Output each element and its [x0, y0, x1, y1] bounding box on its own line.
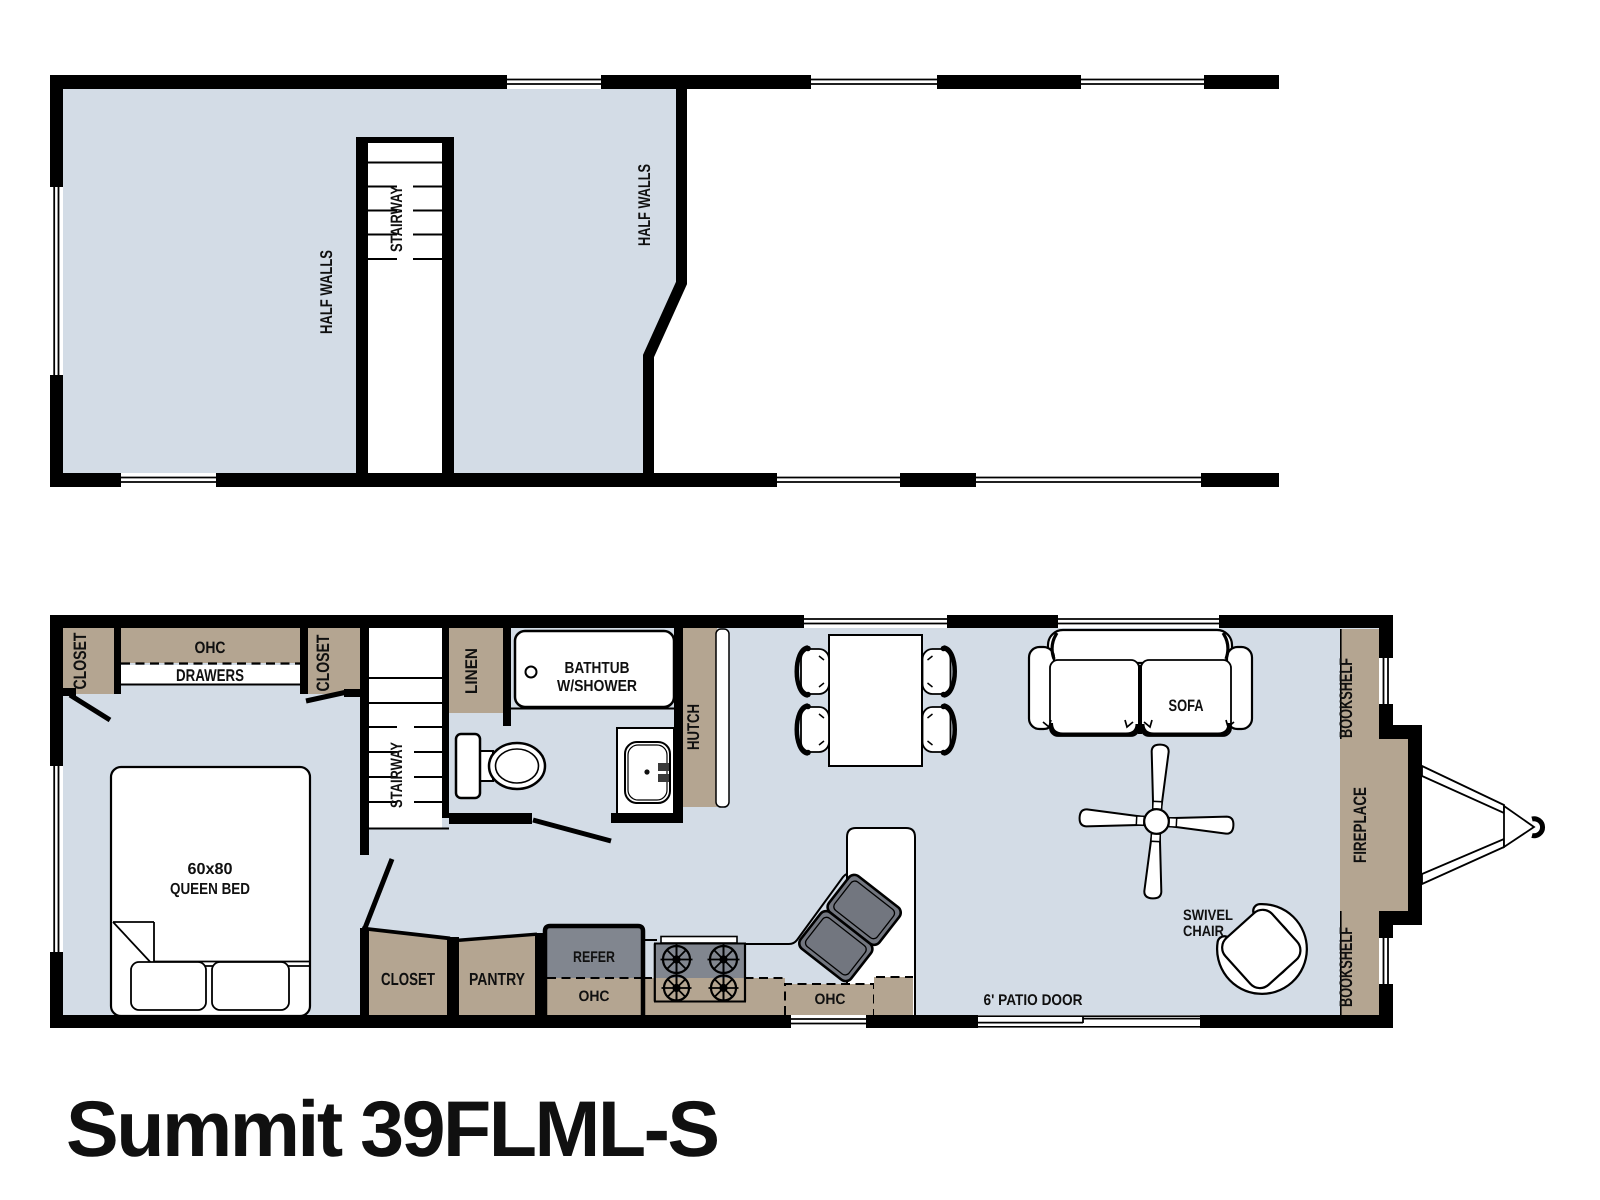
svg-text:Summit 39FLML-S: Summit 39FLML-S: [66, 1084, 718, 1173]
svg-text:PANTRY: PANTRY: [469, 969, 525, 989]
svg-text:CHAIR: CHAIR: [1183, 923, 1224, 940]
svg-text:HUTCH: HUTCH: [684, 704, 703, 750]
svg-text:BOOKSHELF: BOOKSHELF: [1336, 927, 1356, 1007]
svg-text:BATHTUB: BATHTUB: [565, 660, 630, 677]
svg-text:DRAWERS: DRAWERS: [176, 666, 244, 685]
svg-text:STAIRWAY: STAIRWAY: [388, 186, 406, 252]
svg-text:OHC: OHC: [195, 639, 226, 657]
svg-text:OHC: OHC: [815, 991, 846, 1008]
svg-text:LINEN: LINEN: [462, 648, 481, 694]
svg-text:6' PATIO DOOR: 6' PATIO DOOR: [984, 992, 1083, 1009]
svg-text:W/SHOWER: W/SHOWER: [557, 678, 637, 695]
svg-text:REFER: REFER: [573, 949, 615, 966]
svg-text:HALF WALLS: HALF WALLS: [635, 164, 654, 246]
svg-text:BOOKSHELF: BOOKSHELF: [1336, 658, 1356, 738]
svg-text:SOFA: SOFA: [1169, 697, 1204, 715]
svg-text:60x80: 60x80: [188, 861, 233, 878]
svg-text:FIREPLACE: FIREPLACE: [1350, 787, 1370, 863]
svg-text:CLOSET: CLOSET: [70, 633, 90, 690]
svg-text:HALF WALLS: HALF WALLS: [317, 250, 336, 334]
svg-text:OHC: OHC: [579, 988, 610, 1005]
svg-text:QUEEN BED: QUEEN BED: [170, 881, 250, 898]
svg-text:SWIVEL: SWIVEL: [1183, 907, 1233, 924]
svg-text:CLOSET: CLOSET: [381, 969, 435, 989]
svg-text:CLOSET: CLOSET: [313, 635, 333, 692]
svg-text:STAIRWAY: STAIRWAY: [388, 742, 406, 808]
